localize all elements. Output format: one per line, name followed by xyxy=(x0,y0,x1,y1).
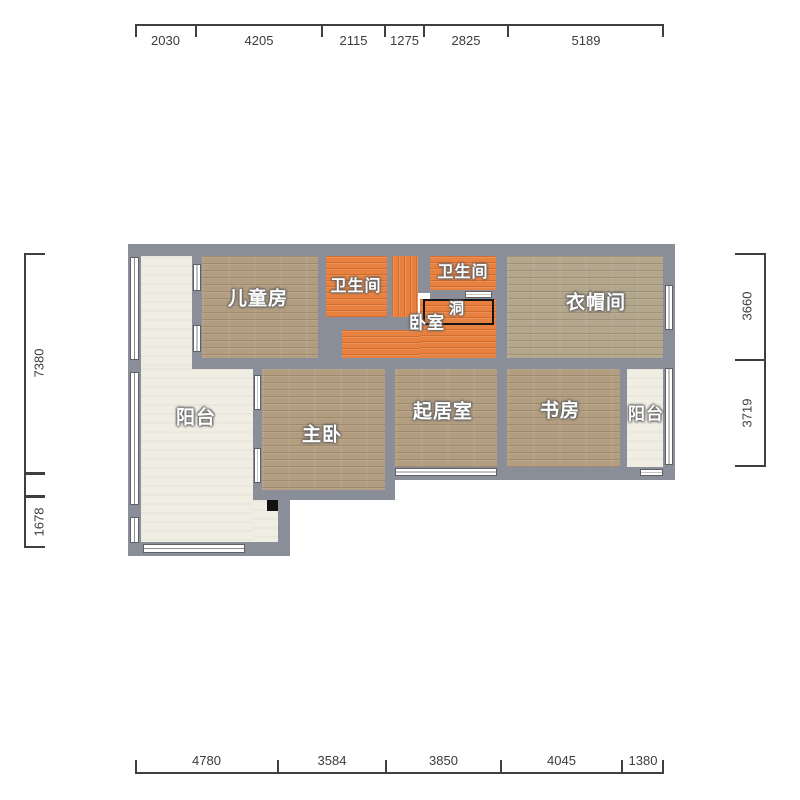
wall-study-balcony xyxy=(620,368,627,480)
dimension-line-left xyxy=(24,253,26,548)
room-label-bedroom: 卧室 xyxy=(409,309,445,334)
room-label-cloakroom: 衣帽间 xyxy=(566,288,626,315)
wall-living-study xyxy=(497,368,507,480)
wall-bath-bottom xyxy=(318,317,420,330)
room-label-balcony-right: 阳台 xyxy=(628,400,664,425)
floor-balcony-left-upper xyxy=(141,256,192,368)
window-cloakroom-right xyxy=(665,285,673,330)
tick xyxy=(24,546,45,548)
tick xyxy=(24,495,45,498)
dim-bottom-1: 4780 xyxy=(135,753,278,768)
wall-middle-horizontal xyxy=(192,358,675,369)
dim-right-2: 3719 xyxy=(740,399,755,428)
dimension-line-top xyxy=(135,24,664,26)
room-label-master: 主卧 xyxy=(302,420,342,447)
tick xyxy=(735,465,766,467)
window-balcony-right-side xyxy=(665,368,673,465)
room-label-children: 儿童房 xyxy=(228,284,288,311)
room-label-living: 起居室 xyxy=(413,397,473,424)
dim-bottom-2: 3584 xyxy=(278,753,386,768)
window-children-balcony-2 xyxy=(193,325,201,352)
dim-top-3: 2115 xyxy=(322,33,385,48)
wall-outer-top xyxy=(128,244,675,256)
wall-bath-left-right xyxy=(387,256,392,317)
floor-plan-canvas: 儿童房 卫生间 卫生间 卧室 洞 衣帽间 阳台 主卧 起居室 书房 阳台 203… xyxy=(0,0,800,800)
dim-top-6: 5189 xyxy=(508,33,664,48)
tick xyxy=(735,359,766,361)
dim-bottom-4: 4045 xyxy=(501,753,622,768)
dim-left-1: 7380 xyxy=(32,349,47,378)
window-left-middle xyxy=(130,372,139,505)
tick xyxy=(735,253,766,255)
dim-top-2: 4205 xyxy=(196,33,322,48)
window-children-balcony-1 xyxy=(193,264,201,291)
dim-top-4: 1275 xyxy=(385,33,424,48)
floor-bedroom-band xyxy=(342,330,420,358)
room-label-balcony-left: 阳台 xyxy=(176,403,216,430)
window-living-bottom xyxy=(395,468,497,476)
tick xyxy=(24,253,45,255)
window-left-lower xyxy=(130,517,139,543)
floor-balcony-left-lower xyxy=(141,368,253,542)
tick xyxy=(24,472,45,475)
window-balcony-bottom xyxy=(143,544,245,553)
wall-corner-block xyxy=(318,330,342,358)
dimension-line-bottom xyxy=(135,772,664,774)
wall-bedroom-cloakroom xyxy=(496,256,507,368)
window-left-upper xyxy=(130,257,139,360)
dim-right-1: 3660 xyxy=(740,292,755,321)
window-balcony-right-bottom xyxy=(640,469,663,476)
window-niche-strip xyxy=(465,291,492,298)
room-label-bathroom-left: 卫生间 xyxy=(330,272,381,296)
wall-master-living xyxy=(385,368,395,500)
room-label-study: 书房 xyxy=(540,396,580,423)
dim-bottom-3: 3850 xyxy=(386,753,501,768)
room-label-hole: 洞 xyxy=(449,298,465,319)
dim-left-2: 1678 xyxy=(32,508,47,537)
window-master-balcony-2 xyxy=(254,448,261,483)
wall-master-bottom xyxy=(253,490,395,500)
wall-bath-top-left xyxy=(418,256,430,293)
column-marker xyxy=(267,500,278,511)
dim-bottom-5: 1380 xyxy=(622,753,664,768)
room-label-bathroom-top: 卫生间 xyxy=(437,258,488,282)
dim-top-1: 2030 xyxy=(135,33,196,48)
dim-top-5: 2825 xyxy=(424,33,508,48)
window-master-balcony-1 xyxy=(254,375,261,410)
